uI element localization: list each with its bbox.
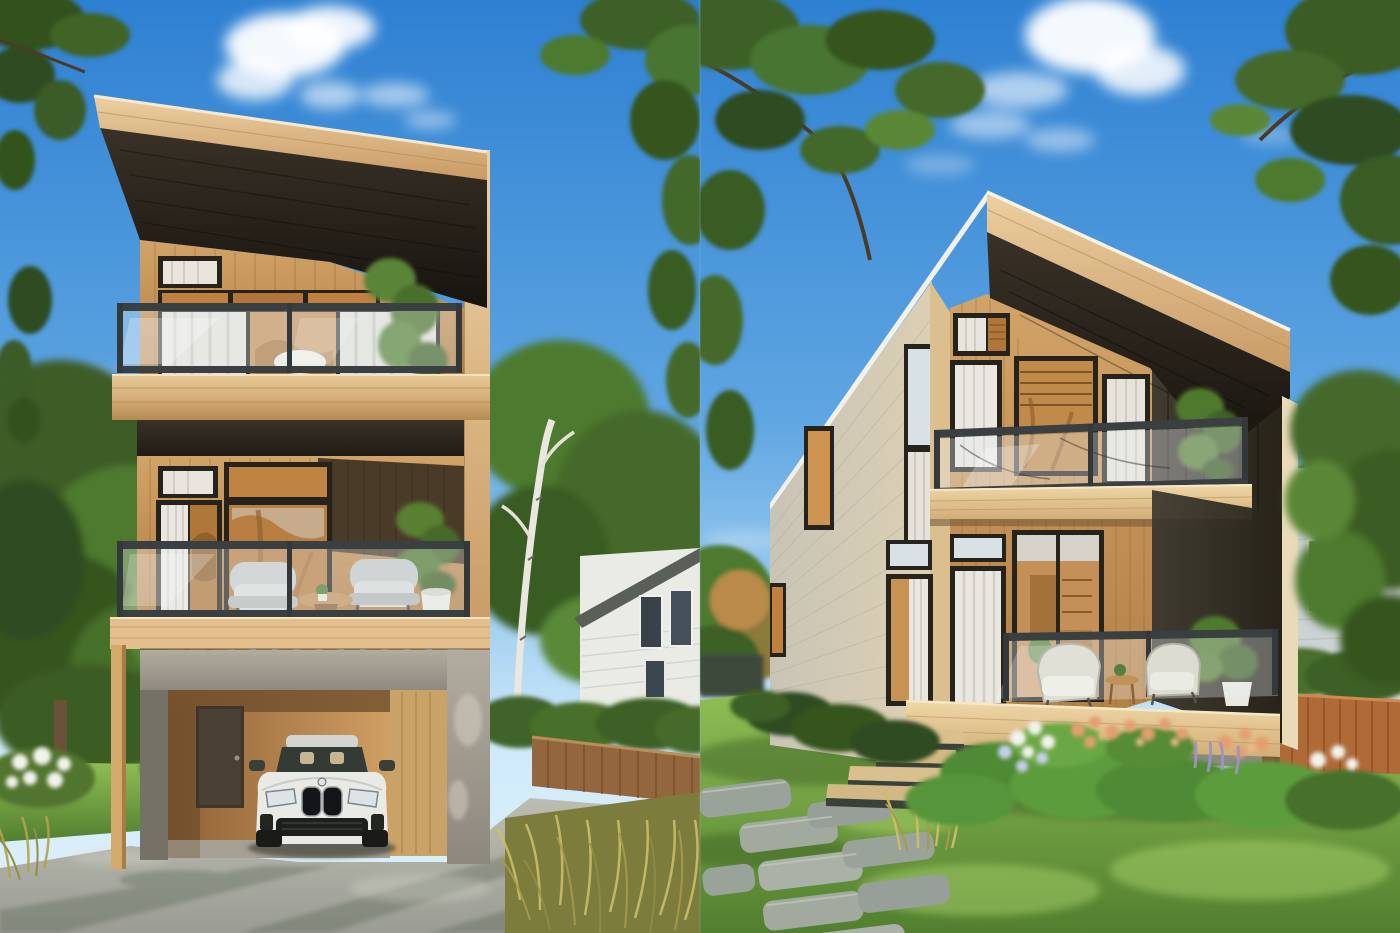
car-wheel-left [256, 830, 282, 847]
car-lower-intake [276, 818, 368, 836]
balcony-railing-top [117, 303, 462, 373]
white-house-background [574, 548, 700, 710]
car-grille-left [302, 787, 321, 816]
car-headlight-right [348, 789, 378, 807]
car-headlight-left [266, 789, 296, 807]
background-house-window [670, 590, 692, 646]
floor-band-upper [112, 374, 490, 420]
right-panel [660, 0, 1400, 933]
car-badge [318, 778, 326, 786]
car-mirror-right [379, 760, 395, 771]
balcony-railing-mid [117, 541, 470, 617]
scene-svg [0, 0, 1400, 933]
floor-band-lower [110, 617, 490, 649]
carport-right-pier [447, 650, 490, 864]
car-roof [286, 735, 358, 749]
left-panel [0, 0, 735, 933]
car-wheel-right [362, 830, 388, 847]
house-left [94, 96, 490, 869]
carport-wood-panel [390, 690, 447, 856]
background-house-window [640, 596, 662, 648]
rendering-diptych [0, 0, 1400, 933]
car-mirror-left [249, 760, 265, 771]
car-grille-right [323, 787, 342, 816]
car-windshield [276, 747, 368, 773]
background-house-window [645, 660, 665, 698]
carport-lintel [140, 650, 490, 692]
carport-left-pier [140, 690, 168, 860]
